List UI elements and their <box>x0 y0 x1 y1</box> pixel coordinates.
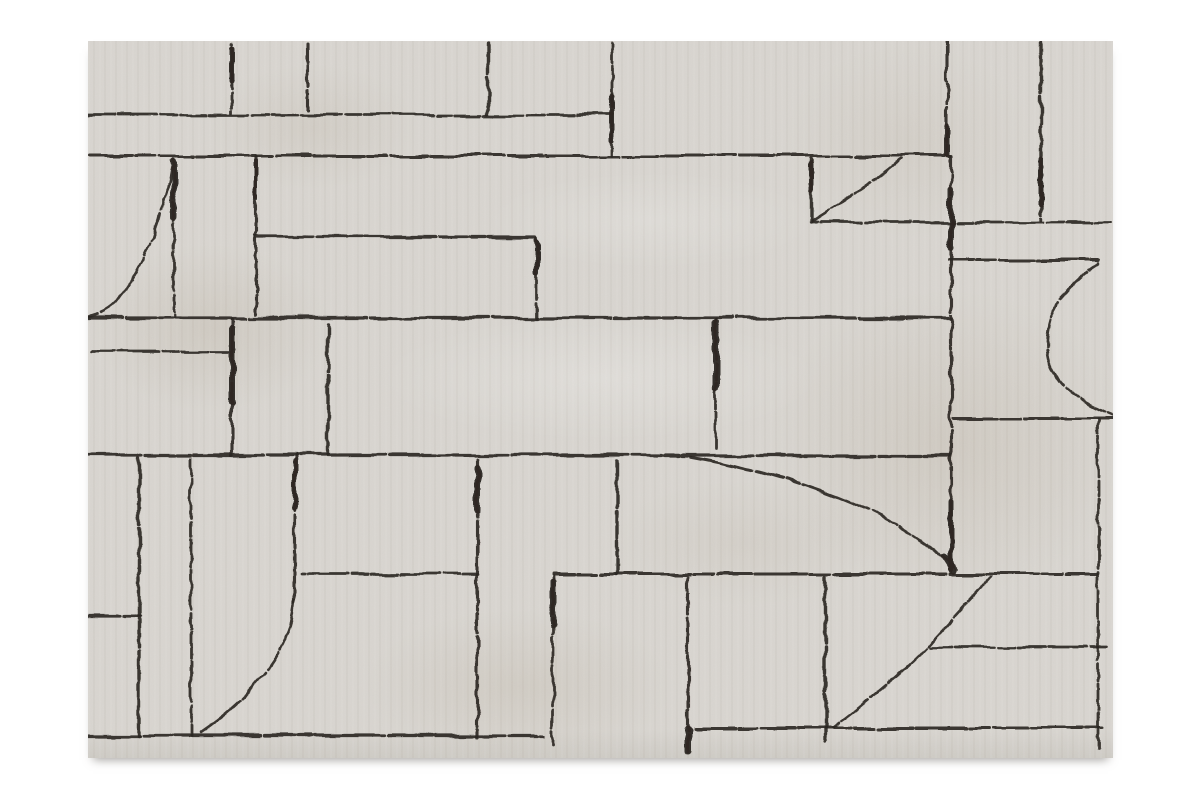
rug-pile-grain <box>88 41 1113 758</box>
rug-pattern-svg <box>88 41 1113 758</box>
product-photo-stage <box>0 0 1200 800</box>
rug-image <box>88 41 1113 758</box>
